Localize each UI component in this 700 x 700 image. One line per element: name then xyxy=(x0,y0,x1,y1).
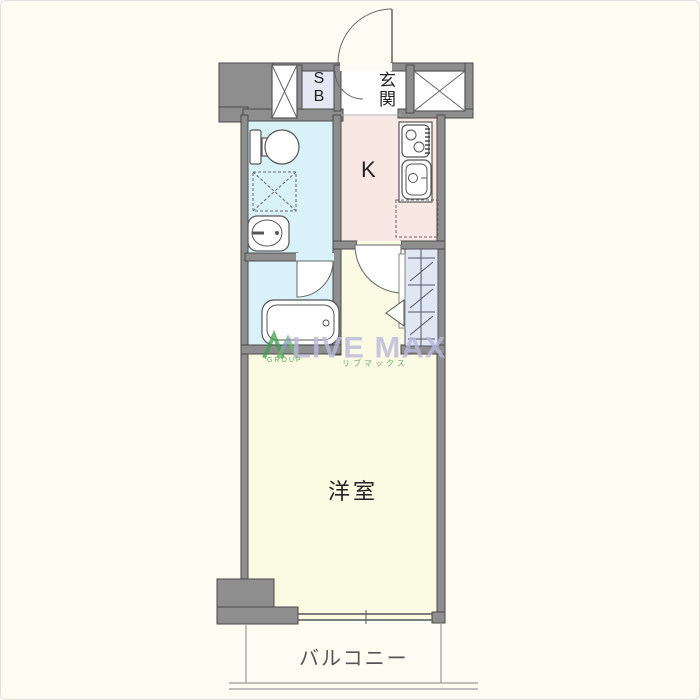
floorplan-canvas: SB 玄関 K 洋室 バルコニー LIVE MAX GROUP リブマックス xyxy=(0,0,700,700)
toilet xyxy=(250,130,299,164)
watermark-kana-text: リブマックス xyxy=(342,358,408,369)
kitchen-sink xyxy=(402,160,431,199)
western-room-label: 洋室 xyxy=(321,474,385,506)
pipe-space-right xyxy=(414,71,465,111)
pipe-space-left xyxy=(272,65,297,118)
entrance-label: 玄関 xyxy=(373,71,398,109)
kitchen-label: K xyxy=(361,157,376,183)
shoe-box-label: SB xyxy=(309,70,329,107)
watermark-group-text: GROUP xyxy=(267,357,303,364)
washbasin xyxy=(248,216,289,251)
stove xyxy=(402,125,430,157)
balcony-label: バルコニー xyxy=(299,642,409,671)
